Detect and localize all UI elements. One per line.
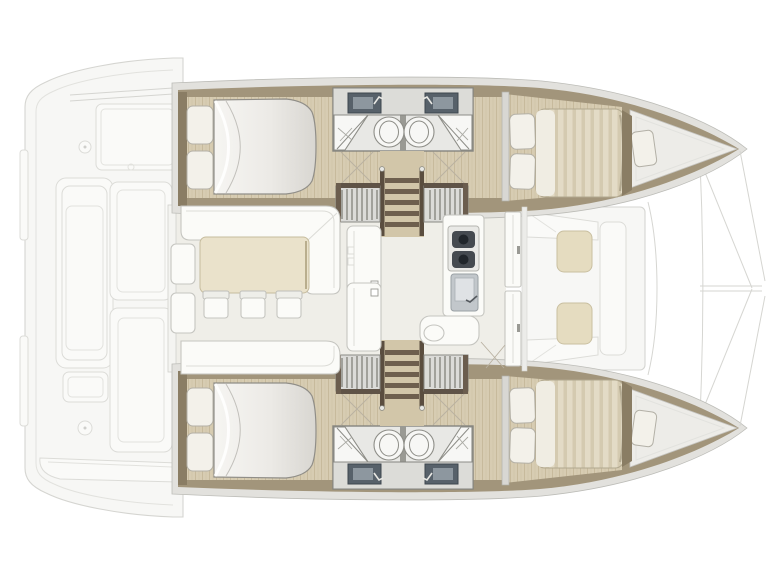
- transom-step: [20, 336, 28, 426]
- cockpit-module: [110, 182, 172, 300]
- forestay-line: [702, 165, 752, 288]
- burner-ring: [459, 255, 469, 265]
- forward-cockpit: [524, 207, 645, 370]
- foredeck-ghost: [648, 162, 762, 415]
- module-latch: [371, 289, 378, 296]
- aft-sliding-door: [168, 205, 176, 372]
- cockpit-cushion: [557, 231, 592, 272]
- salon-module: [347, 283, 381, 351]
- cockpit-cushion: [557, 303, 592, 344]
- door-track: [522, 207, 527, 371]
- seagull-striker: [700, 286, 762, 291]
- door-handle: [517, 246, 520, 254]
- aft-cockpit-ghost: [20, 58, 183, 517]
- salon-sofa-starboard: [181, 341, 340, 374]
- sink-basin: [455, 278, 474, 301]
- dining-chair: [203, 291, 229, 318]
- cockpit-module: [110, 308, 172, 452]
- catamaran-floor-plan: [0, 0, 768, 576]
- door-handle: [517, 324, 520, 332]
- dining-chair: [240, 291, 266, 318]
- galley-stool: [424, 325, 444, 341]
- trampoline-aft-edge: [648, 202, 657, 375]
- aft-bench-top: [96, 104, 178, 170]
- forestay-line: [702, 289, 752, 412]
- dining-table: [200, 237, 309, 293]
- side-bench-cushion: [62, 186, 107, 360]
- burner-ring: [459, 235, 469, 245]
- winch-dot: [84, 146, 87, 149]
- side-table: [171, 244, 195, 284]
- winch-dot: [84, 427, 87, 430]
- bowsprit-line: [700, 162, 703, 415]
- forward-bench-bow: [600, 222, 626, 355]
- transom-step: [20, 150, 28, 240]
- side-table: [171, 293, 195, 333]
- dining-chair: [276, 291, 302, 318]
